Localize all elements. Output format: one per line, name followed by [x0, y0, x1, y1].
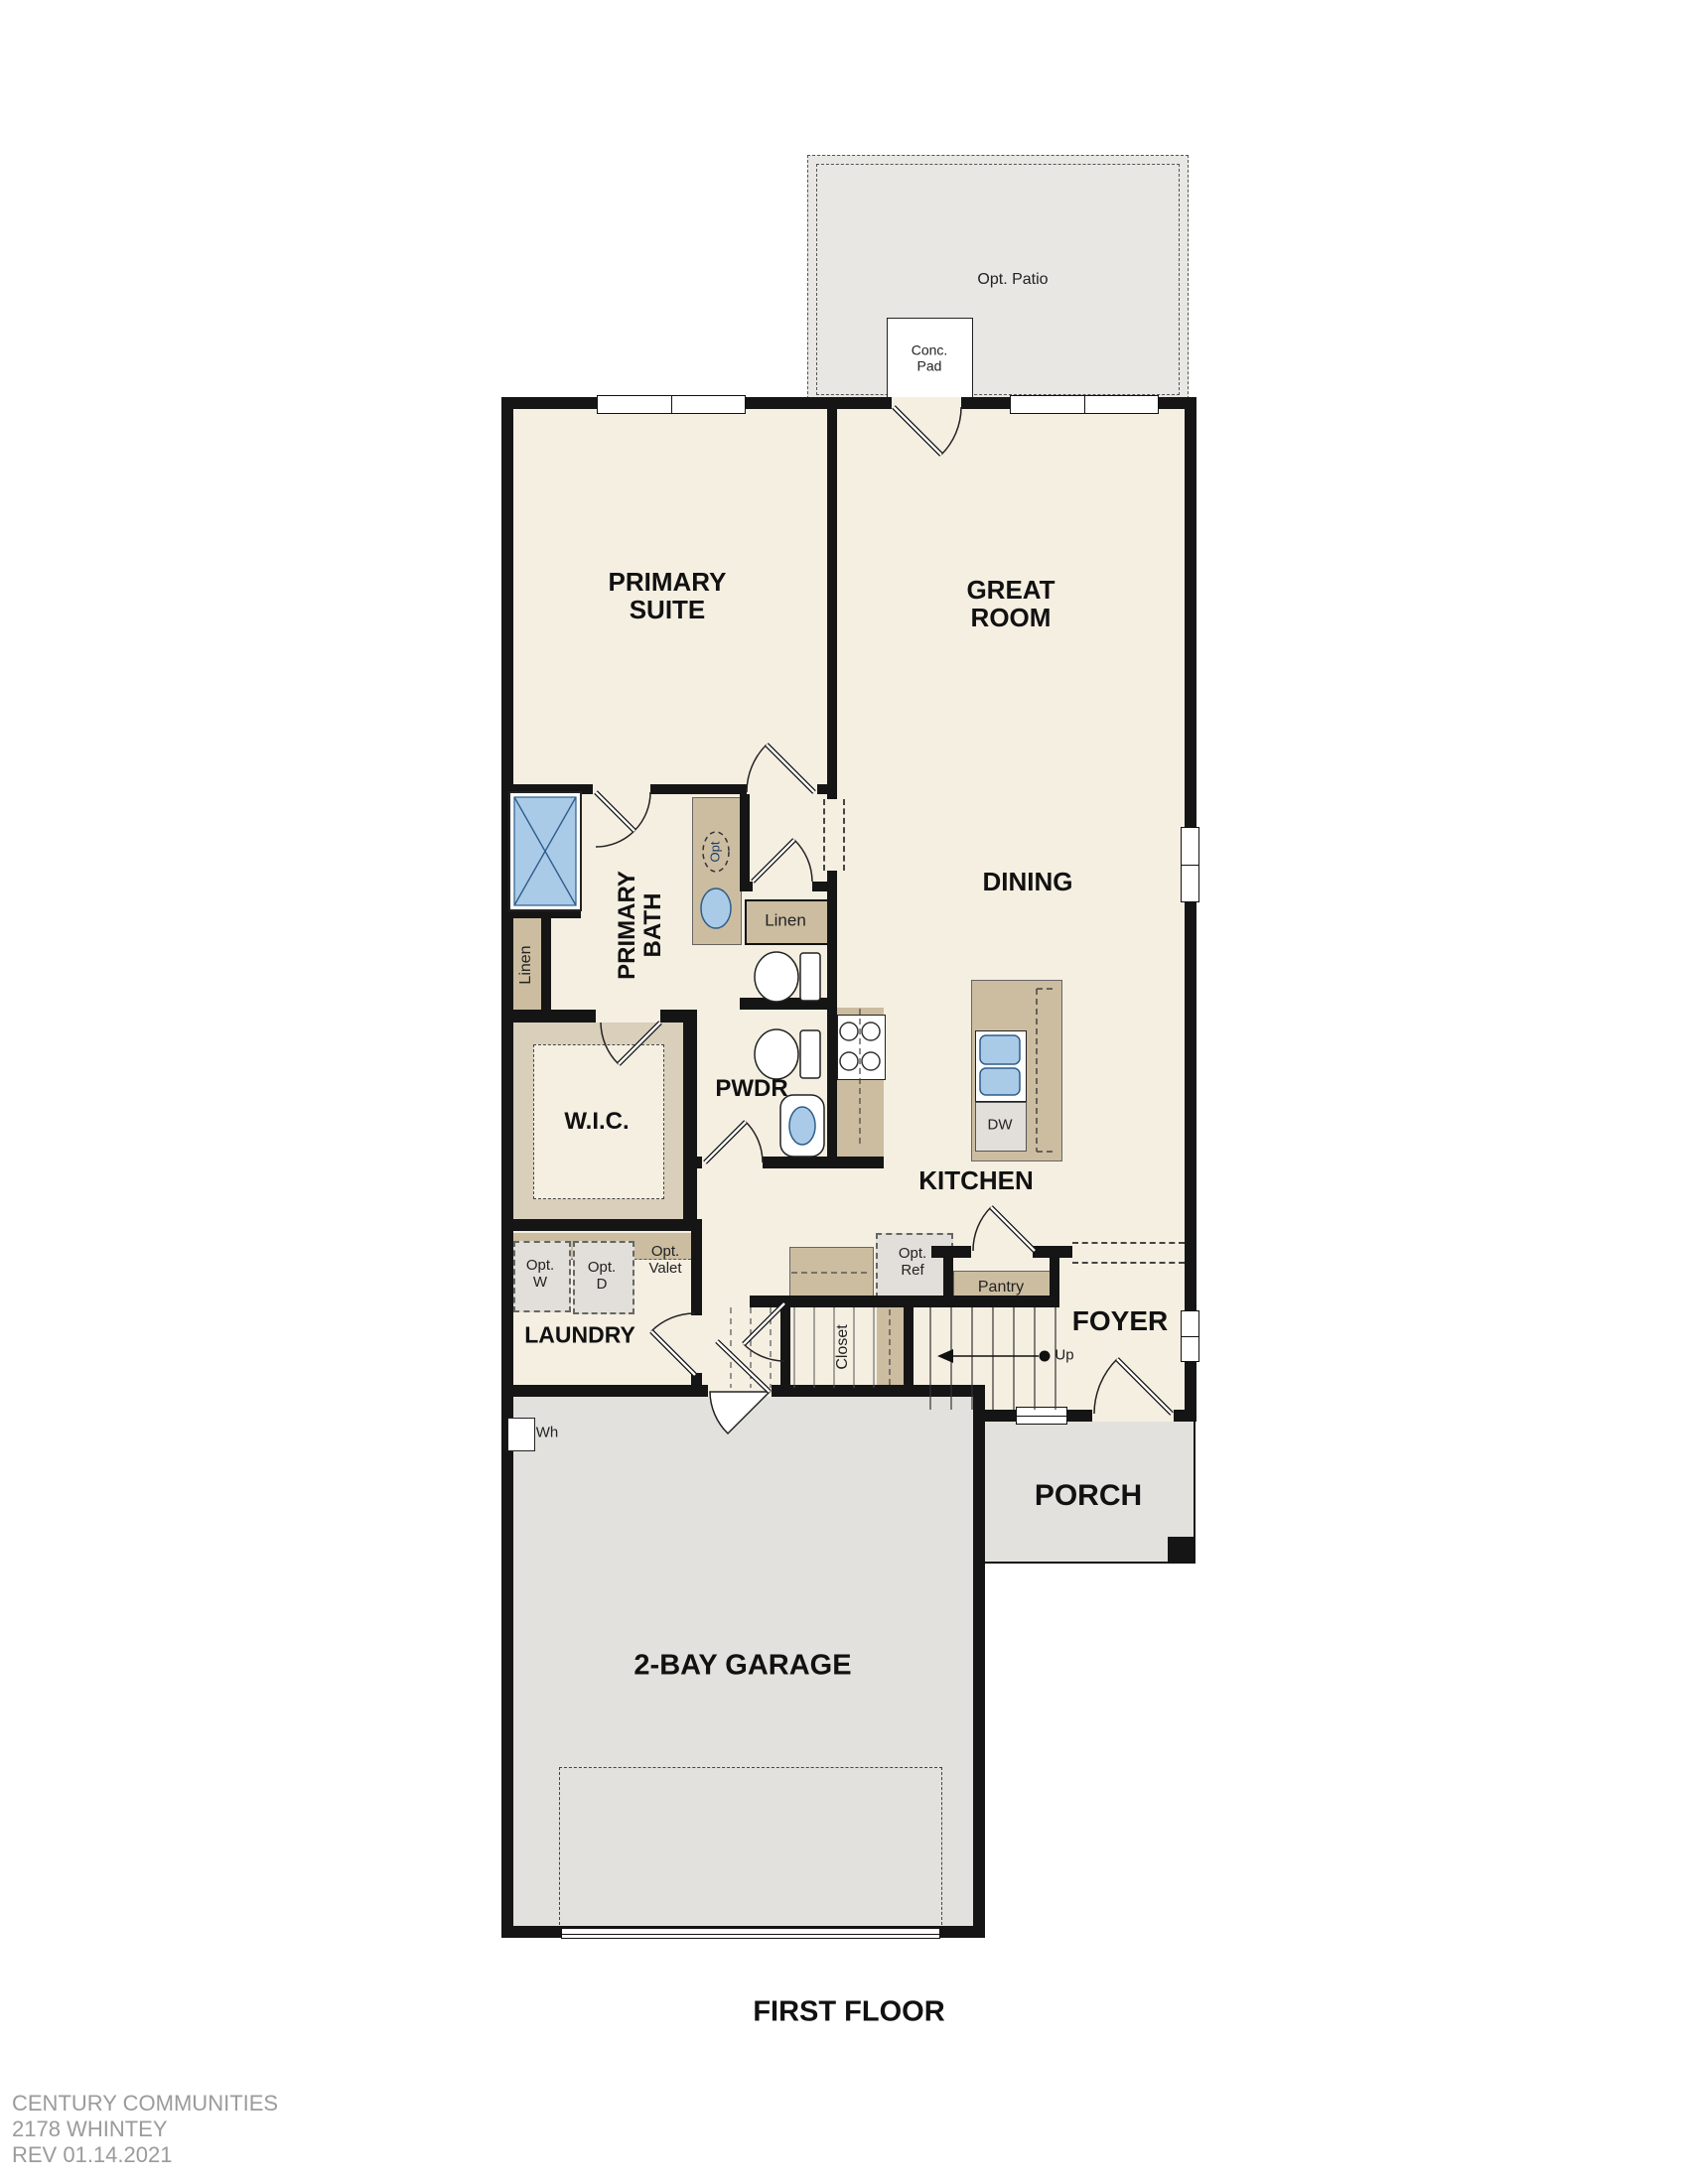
- footer-builder: CENTURY COMMUNITIES: [12, 2091, 278, 2116]
- island-sink-unit: [975, 1030, 1027, 1102]
- wall: [780, 1296, 790, 1397]
- vanity-cabinet: [692, 797, 742, 945]
- footer-plan-number: 2178 WHINTEY: [12, 2116, 278, 2142]
- door-opening: [892, 397, 961, 409]
- wall: [501, 397, 513, 1938]
- opt-ref-label: Opt.Ref: [899, 1246, 926, 1280]
- wall: [740, 998, 837, 1010]
- room-label-pwdr: PWDR: [715, 1076, 787, 1102]
- wall: [683, 1010, 697, 1231]
- concrete-pad-label: Conc.Pad: [912, 342, 948, 373]
- room-label-wic: W.I.C.: [564, 1109, 629, 1135]
- room-label-kitchen: KITCHEN: [918, 1166, 1034, 1194]
- wall: [541, 908, 551, 1020]
- window: [1181, 1310, 1199, 1362]
- wall: [973, 1385, 985, 1938]
- wall: [1050, 1246, 1059, 1307]
- window: [597, 395, 746, 414]
- wall: [904, 1296, 914, 1397]
- opt-sink-label: Opt: [709, 842, 724, 863]
- room-label-great-room: GREATROOM: [966, 576, 1055, 631]
- door-opening: [971, 1246, 1033, 1258]
- wall: [943, 1246, 953, 1307]
- room-label-laundry: LAUNDRY: [524, 1323, 635, 1348]
- up-label: Up: [1055, 1348, 1073, 1365]
- wall: [827, 402, 837, 1161]
- linen-label: Linen: [765, 910, 806, 929]
- cooktop: [837, 1015, 886, 1080]
- door-opening: [596, 1010, 660, 1023]
- wall: [691, 1373, 702, 1397]
- door-opening: [702, 1157, 763, 1168]
- door-opening: [691, 1315, 702, 1373]
- window: [1010, 395, 1159, 414]
- door-opening: [1092, 1410, 1174, 1422]
- porch-post: [1168, 1537, 1196, 1563]
- plan-footer: CENTURY COMMUNITIES 2178 WHINTEY REV 01.…: [12, 2091, 278, 2168]
- floor-plan: Opt. Patio Conc.Pad: [0, 0, 1688, 2184]
- water-heater-label: Wh: [536, 1426, 559, 1442]
- wall: [1185, 397, 1196, 1422]
- dishwasher-label: DW: [988, 1118, 1013, 1135]
- footer-revision: REV 01.14.2021: [12, 2142, 278, 2168]
- mud-bench: [789, 1247, 874, 1300]
- opt-valet-label: Opt.Valet: [648, 1244, 681, 1278]
- door-opening: [753, 882, 812, 891]
- door-opening: [747, 784, 817, 794]
- opt-patio-label: Opt. Patio: [977, 271, 1048, 289]
- wall: [740, 792, 750, 891]
- water-heater: [507, 1418, 535, 1451]
- window: [1016, 1407, 1067, 1425]
- closet-label: Closet: [834, 1324, 852, 1369]
- room-label-primary-bath: PRIMARYBATH: [615, 871, 666, 980]
- cased-opening-foyer: [1072, 1242, 1185, 1264]
- garage-door: [561, 1928, 940, 1939]
- door-opening: [593, 784, 650, 794]
- wall: [691, 1219, 702, 1318]
- garage-driveway-apron: [559, 1767, 942, 1930]
- window: [1181, 827, 1199, 902]
- opt-washer-label: Opt.W: [526, 1258, 554, 1292]
- opt-dryer-label: Opt.D: [588, 1260, 616, 1294]
- linen-label: Linen: [517, 945, 535, 984]
- room-label-garage: 2-BAY GARAGE: [633, 1650, 851, 1681]
- closet-shelf-strip: [877, 1307, 904, 1388]
- room-label-dining: DINING: [983, 868, 1073, 895]
- pantry-label: Pantry: [978, 1279, 1024, 1297]
- cased-opening-great-room: [823, 799, 845, 871]
- room-label-porch: PORCH: [1035, 1480, 1142, 1512]
- plan-title: FIRST FLOOR: [753, 1996, 944, 2027]
- wall: [501, 1219, 695, 1231]
- door-opening: [708, 1385, 772, 1397]
- room-label-foyer: FOYER: [1072, 1306, 1168, 1336]
- room-label-primary-suite: PRIMARYSUITE: [609, 568, 727, 623]
